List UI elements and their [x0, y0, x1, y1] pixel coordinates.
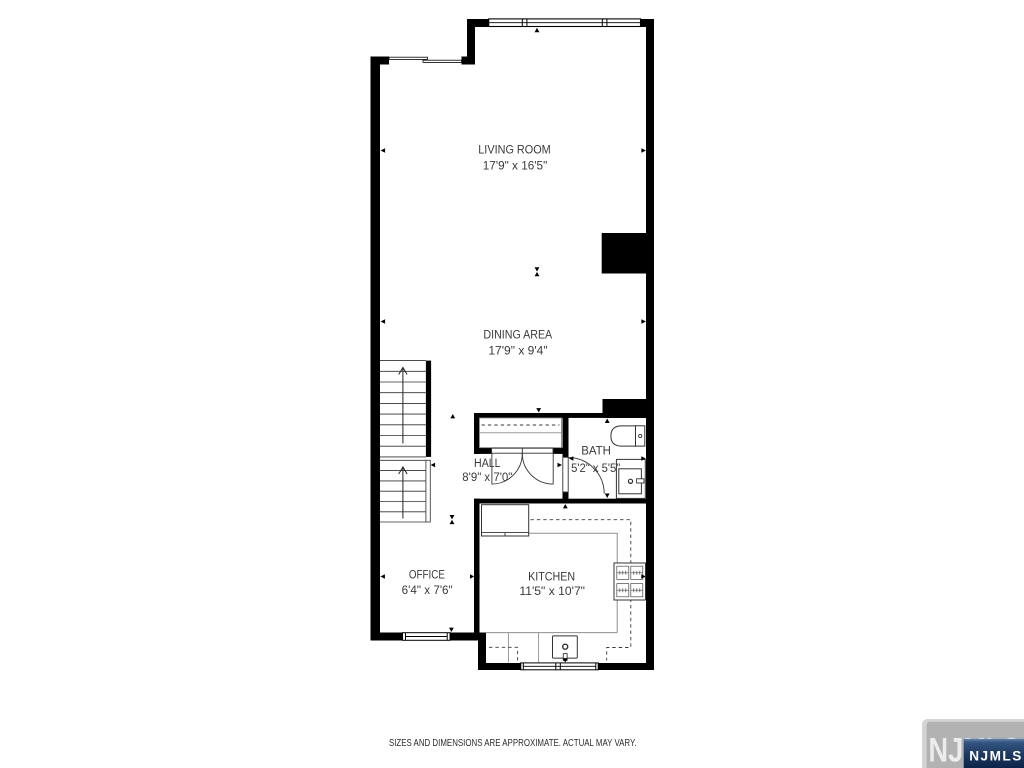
svg-text:OFFICE: OFFICE — [409, 569, 445, 581]
svg-text:8'9" x 7'0": 8'9" x 7'0" — [462, 472, 512, 484]
svg-text:BATH: BATH — [581, 446, 611, 458]
svg-text:17'9" x 16'5": 17'9" x 16'5" — [483, 160, 548, 172]
svg-text:KITCHEN: KITCHEN — [528, 571, 575, 583]
svg-text:5'2" x 5'5": 5'2" x 5'5" — [571, 463, 620, 475]
svg-text:DINING AREA: DINING AREA — [483, 330, 552, 342]
svg-text:LIVING ROOM: LIVING ROOM — [478, 145, 551, 157]
svg-text:NJMLS: NJMLS — [969, 748, 1023, 763]
svg-text:HALL: HALL — [474, 458, 501, 470]
svg-text:17'9" x 9'4": 17'9" x 9'4" — [488, 345, 547, 357]
svg-text:6'4" x 7'6": 6'4" x 7'6" — [402, 585, 453, 597]
svg-text:11'5" x 10'7": 11'5" x 10'7" — [519, 586, 585, 598]
svg-text:SIZES AND DIMENSIONS ARE APPRO: SIZES AND DIMENSIONS ARE APPROXIMATE. AC… — [389, 738, 637, 749]
